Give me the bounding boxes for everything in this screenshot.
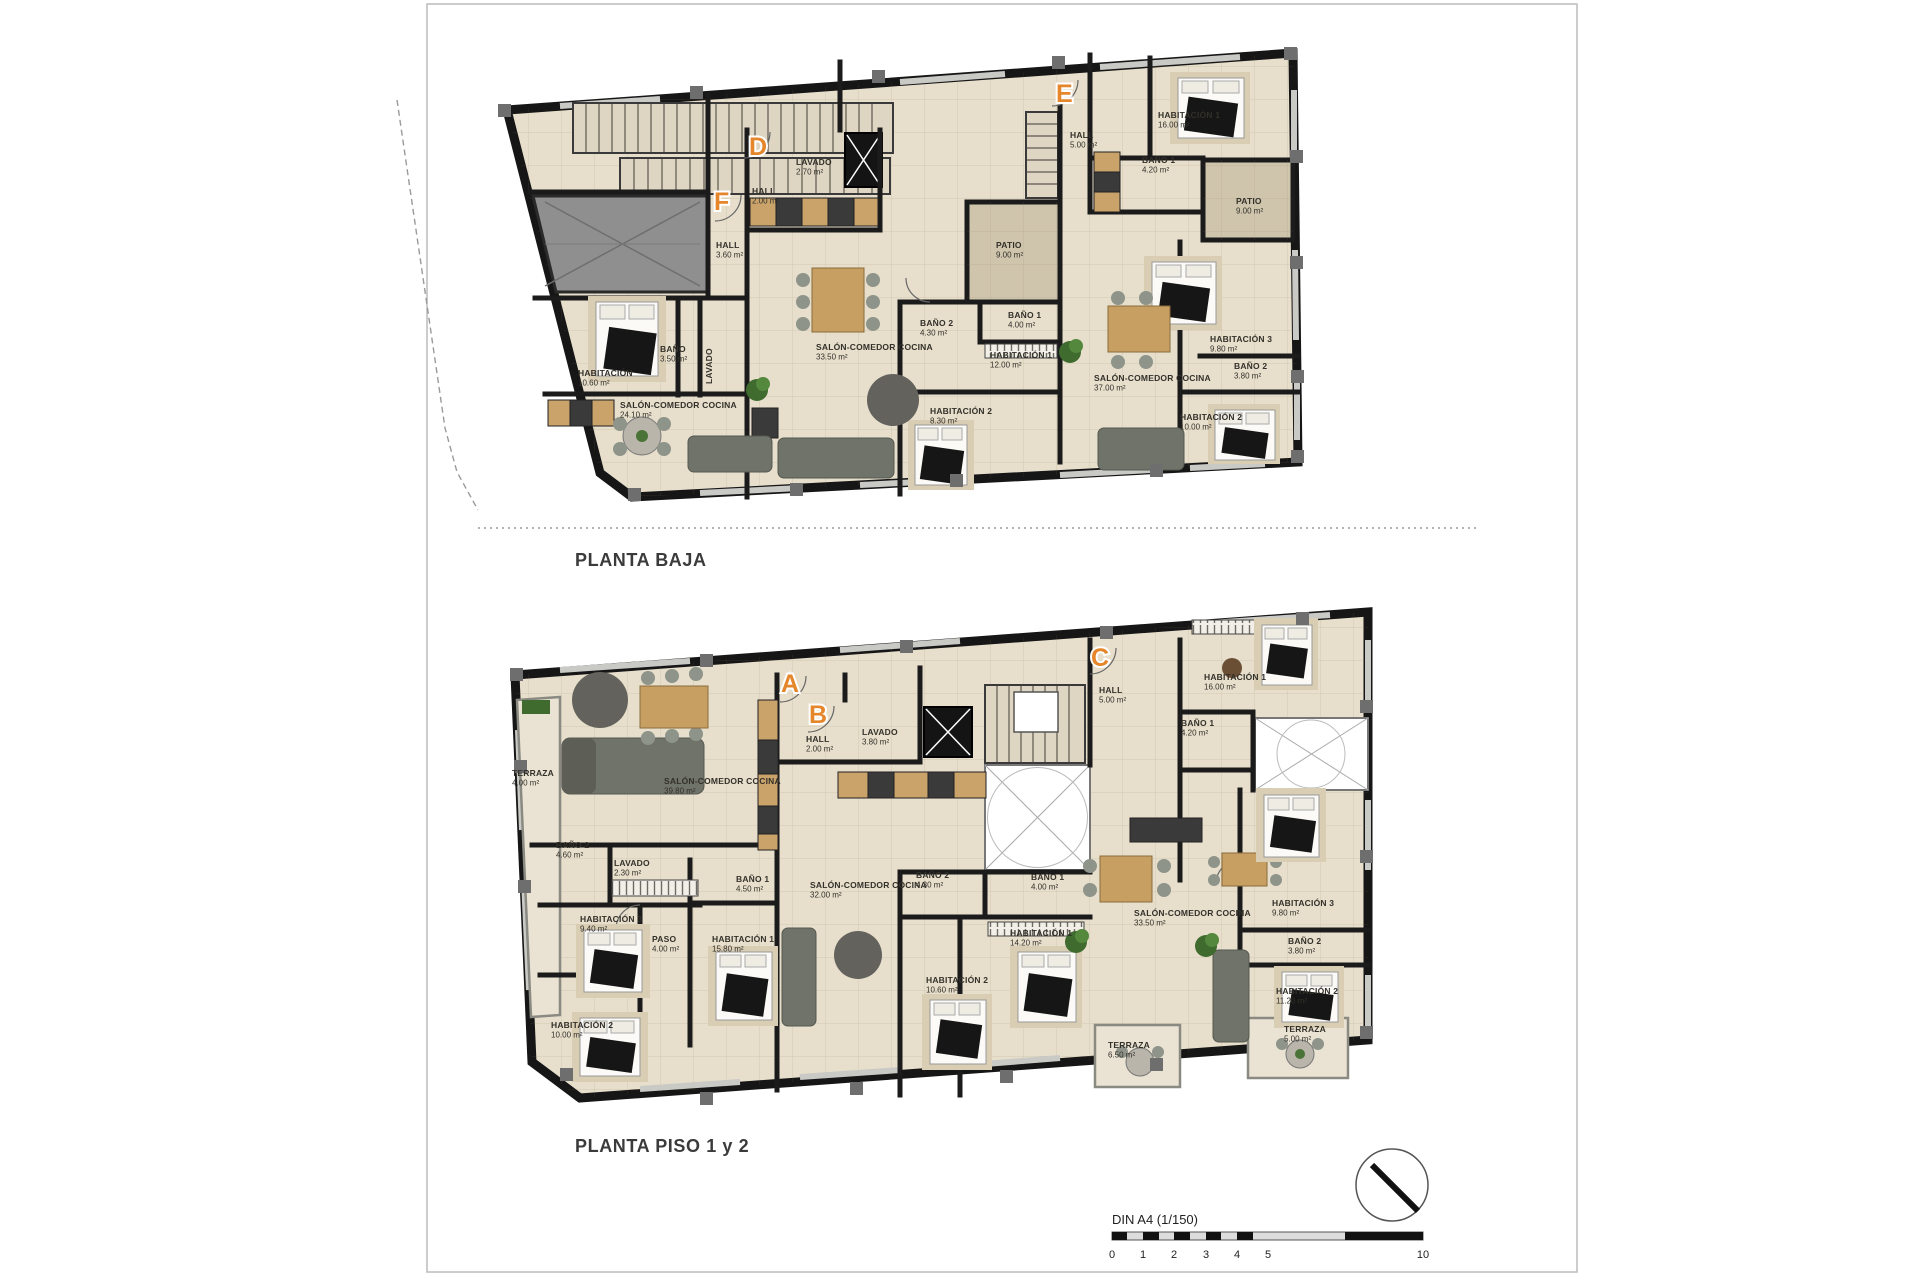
apartment-letter-e: E	[1056, 80, 1073, 108]
kitchen-f	[548, 400, 614, 426]
scale-tick: 5	[1265, 1249, 1271, 1261]
bed	[1010, 946, 1082, 1028]
bed	[922, 994, 992, 1070]
scale-tick: 10	[1417, 1249, 1429, 1261]
sofa	[688, 436, 772, 472]
plan-title-planta-piso: PLANTA PISO 1 y 2	[575, 1136, 749, 1156]
planter	[522, 700, 550, 714]
sofa-chaise	[562, 738, 596, 794]
kitchen-island	[752, 408, 778, 438]
round-rug	[834, 931, 882, 979]
round-rug	[867, 374, 919, 426]
bed	[708, 946, 778, 1026]
room-label: PASO4.00 m²	[652, 934, 679, 954]
kitchen-a	[758, 700, 778, 850]
lightwell-c	[1255, 718, 1368, 790]
elevator	[924, 707, 972, 757]
plan-title-planta-baja: PLANTA BAJA	[575, 550, 707, 570]
sofa	[778, 438, 894, 478]
kitchen-e	[1094, 152, 1120, 212]
scale-tick: 4	[1234, 1249, 1240, 1261]
room-label: PATIO9.00 m²	[1236, 196, 1263, 216]
floor-plan-drawing: HALL3.60 m²HABITACIÓN10.60 m²BAÑO3.50 m²…	[0, 0, 1920, 1280]
apartment-letter-f: F	[714, 188, 729, 216]
room-label: HALL2.00 m²	[806, 734, 833, 754]
dining-table	[796, 268, 880, 332]
apartment-letter-b: B	[809, 701, 827, 729]
scale-label: DIN A4 (1/150)	[1112, 1212, 1198, 1227]
scale-tick: 0	[1109, 1249, 1115, 1261]
scale-tick: 2	[1171, 1249, 1177, 1261]
apartment-letter-c: C	[1091, 644, 1109, 672]
room-label: LAVADO	[704, 348, 714, 384]
elevator	[845, 133, 882, 187]
kitchen-b	[838, 772, 986, 798]
ramp-area	[533, 196, 708, 292]
room-label: BAÑO3.50 m²	[660, 344, 687, 364]
sofa	[782, 928, 816, 1026]
bed	[1170, 72, 1250, 144]
scale-tick: 1	[1140, 1249, 1146, 1261]
room-label: HALL5.00 m²	[1099, 685, 1126, 705]
sheet: HALL3.60 m²HABITACIÓN10.60 m²BAÑO3.50 m²…	[0, 0, 1920, 1280]
sofa	[1098, 428, 1184, 470]
bed	[908, 420, 974, 490]
north-indicator	[1356, 1149, 1428, 1221]
room-label: HALL2.00 m²	[752, 186, 779, 206]
stair-e	[1026, 112, 1058, 198]
room-label: PATIO9.00 m²	[996, 240, 1023, 260]
scale-tick: 3	[1203, 1249, 1209, 1261]
lightwell-b	[985, 765, 1090, 870]
room-label: HALL3.60 m²	[716, 240, 743, 260]
apartment-letter-d: D	[749, 133, 767, 161]
room-label: HALL5.00 m²	[1070, 130, 1097, 150]
kitchen-island	[1130, 818, 1202, 842]
sofa	[1213, 950, 1249, 1042]
dining-table	[640, 667, 708, 745]
bed	[1256, 788, 1326, 862]
apartment-letter-a: A	[781, 670, 799, 698]
round-rug	[572, 672, 628, 728]
bed	[576, 924, 650, 998]
staircase	[985, 685, 1085, 763]
